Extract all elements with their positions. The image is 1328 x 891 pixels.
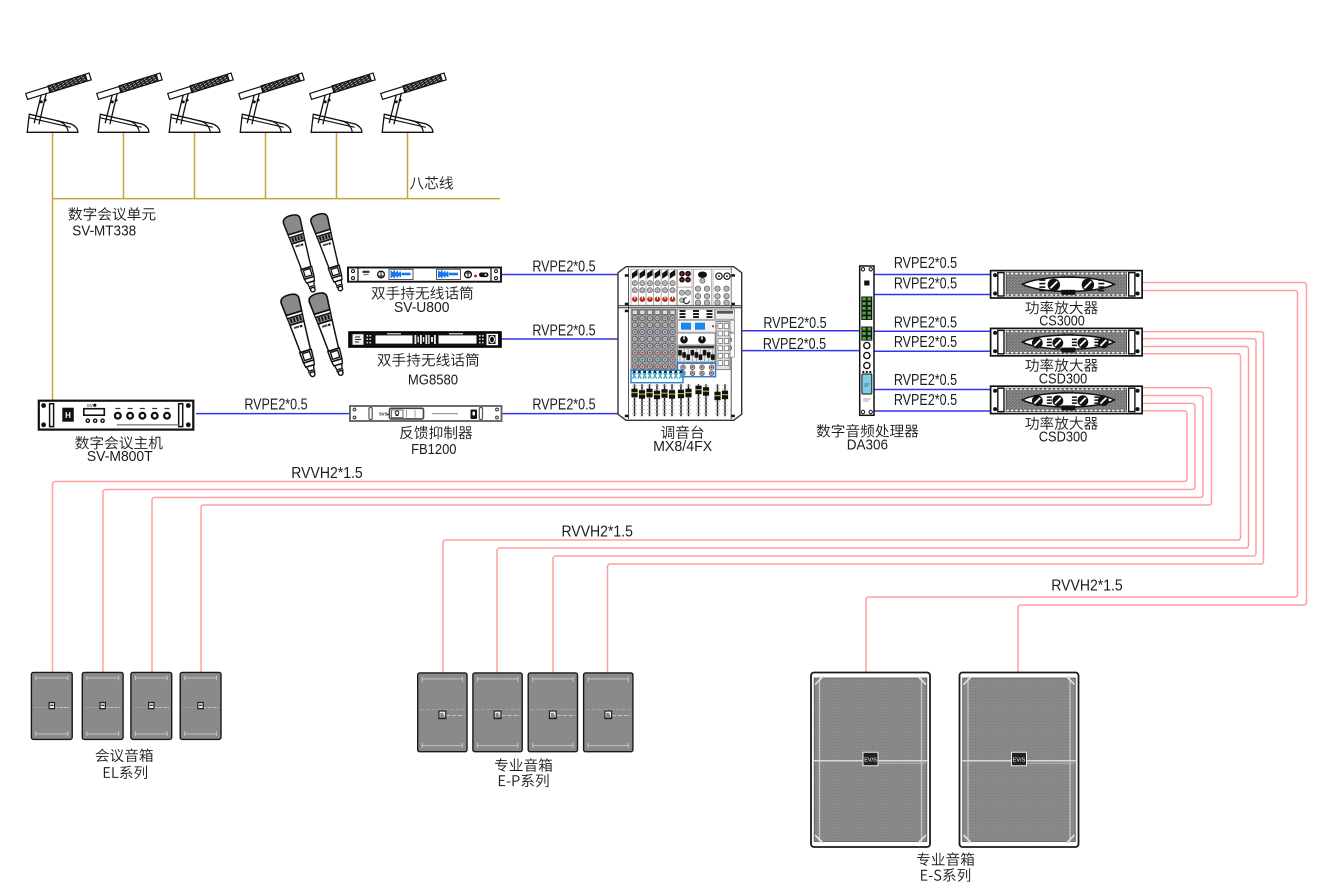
svg-text:SVS▸: SVS▸ [379,412,390,417]
svg-text:RVVH2*1.5: RVVH2*1.5 [562,524,633,541]
svg-text:CSD300: CSD300 [1039,370,1088,387]
svg-text:CS3000: CS3000 [1039,312,1085,329]
svg-text:RVPE2*0.5: RVPE2*0.5 [894,275,957,292]
svg-text:RVVH2*1.5: RVVH2*1.5 [1051,578,1122,595]
svg-text:RVPE2*0.5: RVPE2*0.5 [244,397,307,414]
svg-text:DA306: DA306 [847,436,888,453]
svg-text:RVPE2*0.5: RVPE2*0.5 [894,372,957,389]
svg-text:RVPE2*0.5: RVPE2*0.5 [894,392,957,409]
svg-text:MG8580: MG8580 [408,371,458,388]
svg-text:RVPE2*0.5: RVPE2*0.5 [894,314,957,331]
svg-text:SV-U800: SV-U800 [394,299,449,316]
svg-text:RVVH2*1.5: RVVH2*1.5 [291,465,362,482]
svg-text:MX8/4FX: MX8/4FX [653,438,712,455]
svg-text:CSD300: CSD300 [1039,428,1088,445]
svg-text:RVPE2*0.5: RVPE2*0.5 [763,336,826,353]
svg-text:SV: SV [87,403,93,408]
svg-text:RVPE2*0.5: RVPE2*0.5 [532,259,595,276]
svg-text:RVPE2*0.5: RVPE2*0.5 [532,323,595,340]
svg-text:RVPE2*0.5: RVPE2*0.5 [532,397,595,414]
svg-text:SV-MT338: SV-MT338 [72,223,136,240]
svg-text:RVPE2*0.5: RVPE2*0.5 [763,315,826,332]
svg-text:RVPE2*0.5: RVPE2*0.5 [894,334,957,351]
svg-text:FB1200: FB1200 [411,441,456,458]
svg-text:RVPE2*0.5: RVPE2*0.5 [894,255,957,272]
svg-text:H: H [65,411,71,420]
svg-text:SV-M800T: SV-M800T [87,448,153,465]
